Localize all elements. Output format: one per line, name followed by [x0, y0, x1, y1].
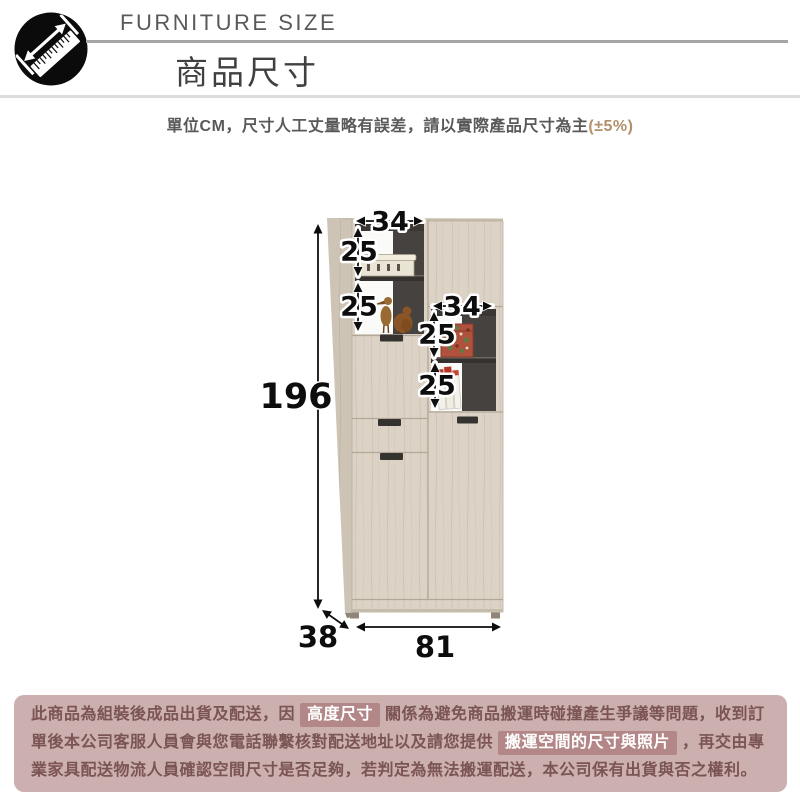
header-divider-light	[0, 95, 800, 98]
page-title: 商品尺寸	[175, 46, 319, 94]
dimension-lower-cell-2: 25	[418, 363, 456, 408]
dimension-lower-cell-1: 25	[418, 312, 456, 357]
cabinet-dimension-diagram: 196 34 25 25 34 25	[230, 180, 590, 680]
svg-text:34: 34	[443, 292, 481, 323]
door-handle	[380, 453, 403, 460]
svg-text:81: 81	[415, 630, 455, 664]
dimension-total-height: 196	[259, 224, 332, 609]
door-handle	[457, 417, 478, 424]
shipping-notice: 此商品為組裝後成品出貨及配送，因高度尺寸關係為避免商品搬運時碰撞產生爭議等問題，…	[14, 695, 787, 792]
svg-text:196: 196	[259, 377, 332, 417]
svg-text:25: 25	[340, 237, 378, 268]
tolerance-note: (±5%)	[588, 118, 633, 135]
svg-text:38: 38	[298, 620, 338, 654]
header-divider-dark	[86, 40, 788, 43]
dimension-depth: 38	[298, 606, 352, 654]
door-handle	[380, 335, 403, 342]
notice-chip-space-photo: 搬運空間的尺寸與照片	[498, 731, 677, 755]
svg-text:25: 25	[418, 371, 456, 402]
header-eyebrow: FURNITURE SIZE	[120, 10, 337, 36]
svg-text:25: 25	[418, 320, 456, 351]
measurement-note-text: 單位CM，尺寸人工丈量略有誤差，請以實際產品尺寸為主	[167, 118, 589, 135]
notice-text-1: 此商品為組裝後成品出貨及配送，因	[31, 706, 295, 723]
ruler-measure-icon	[13, 11, 89, 87]
drawer-handle	[378, 419, 401, 426]
cabinet-illustration	[327, 218, 503, 619]
svg-text:34: 34	[371, 207, 409, 238]
svg-text:25: 25	[340, 292, 378, 323]
measurement-note: 單位CM，尺寸人工丈量略有誤差，請以實際產品尺寸為主(±5%)	[0, 112, 800, 136]
notice-chip-height: 高度尺寸	[300, 703, 380, 727]
dimension-width: 81	[356, 623, 501, 665]
